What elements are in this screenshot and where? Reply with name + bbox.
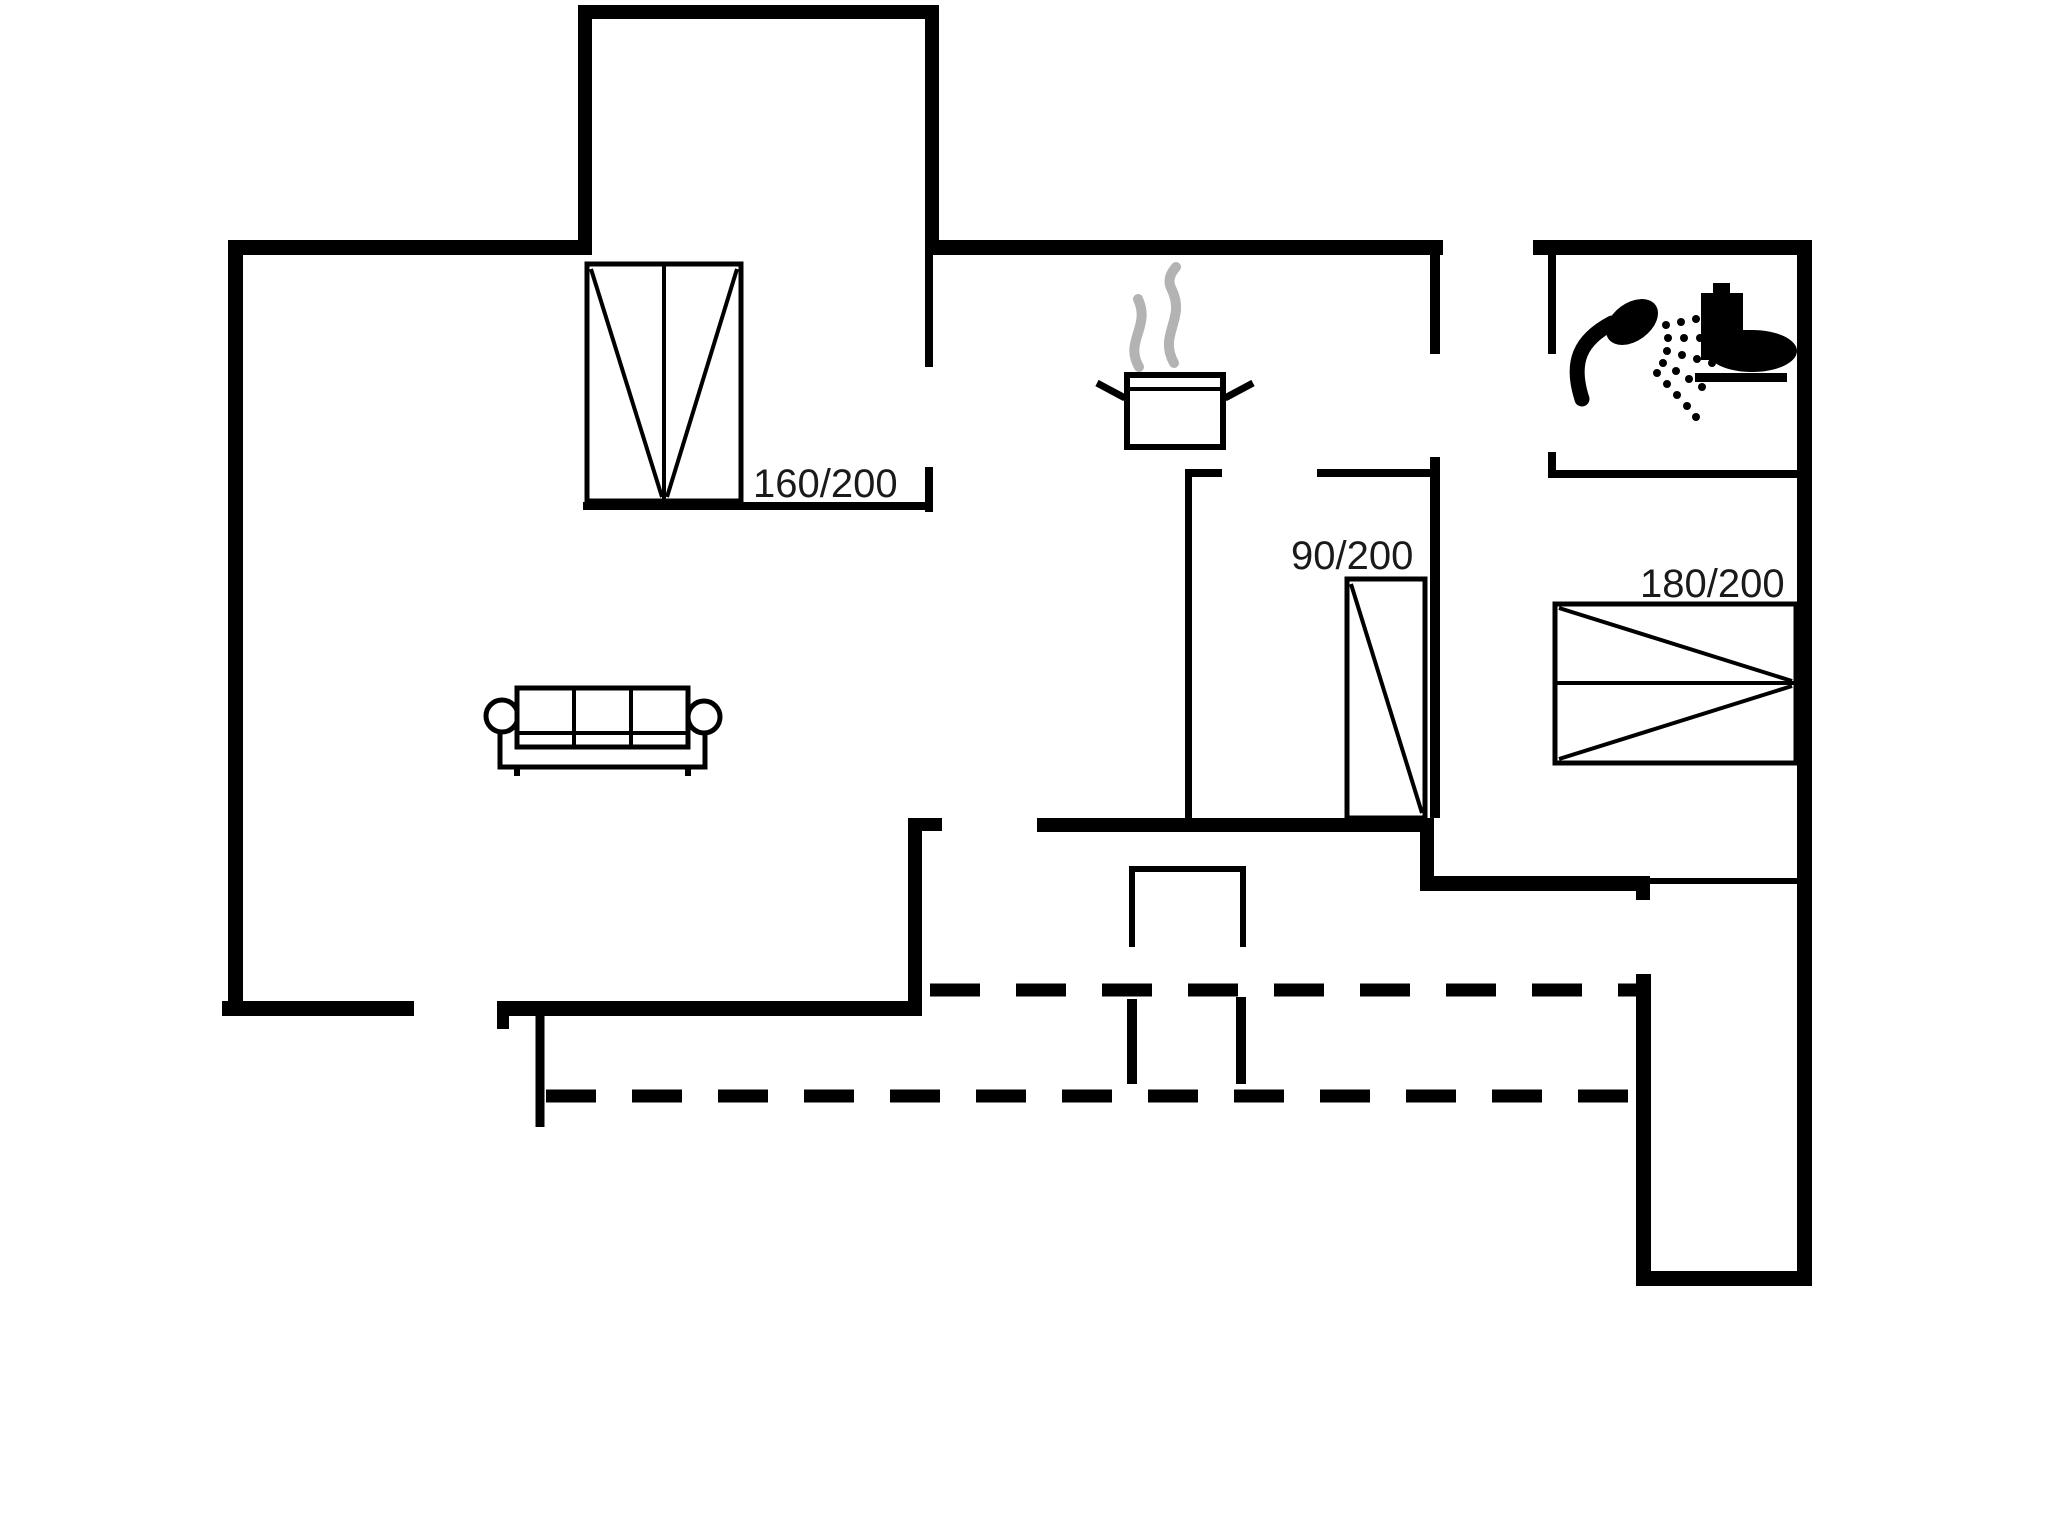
- pot-handle-left: [1097, 383, 1125, 398]
- wall-right: [1797, 240, 1812, 1286]
- wall-bedroom2-top: [1317, 469, 1430, 477]
- wall-bottom-center: [497, 1001, 922, 1016]
- wall-bedroom1-right-upper: [925, 255, 933, 367]
- toilet-base: [1695, 373, 1787, 382]
- wall-bottom-left: [222, 1001, 414, 1016]
- wall-annex-top-cap: [1636, 888, 1650, 900]
- shower-icon: [1577, 290, 1720, 421]
- bed-160-icon: [587, 264, 741, 501]
- alcove-wall-left: [578, 5, 592, 255]
- wall-top-left: [228, 240, 590, 255]
- bed-label-90: 90/200: [1291, 534, 1413, 578]
- wall-livingroom-right-stub: [908, 818, 942, 831]
- sofa-armrest-left: [486, 700, 518, 732]
- floor-plan-page: 160/200 90/200 180/200: [0, 0, 2048, 1536]
- steam-wisp-right: [1169, 267, 1176, 363]
- toilet-bowl: [1707, 330, 1797, 372]
- wall-left: [228, 240, 243, 1016]
- bed-label-160: 160/200: [753, 462, 898, 506]
- wall-top-bathroom: [1533, 240, 1812, 255]
- bed-90-icon: [1347, 579, 1425, 818]
- sofa-leg-right: [685, 767, 691, 776]
- wall-top-middle: [925, 240, 1443, 255]
- wall-kitchen-opening: [1430, 255, 1440, 354]
- alcove-wall-right: [925, 5, 939, 255]
- bed-label-180: 180/200: [1640, 562, 1785, 606]
- wall-livingroom-right: [908, 818, 922, 1016]
- sofa-leg-left: [514, 767, 520, 776]
- wall-bathroom-bottom: [1548, 470, 1798, 478]
- annex-ledge-line: [1650, 878, 1798, 884]
- step-outline: [1132, 869, 1243, 947]
- steam-wisp-left: [1134, 299, 1141, 367]
- bed-180-icon: [1555, 604, 1796, 763]
- wall-terrace-right: [1636, 974, 1651, 1286]
- sofa-armrest-right: [688, 701, 720, 733]
- sofa-backrest: [517, 688, 688, 747]
- wall-bedroom2-right: [1430, 457, 1440, 818]
- alcove-wall-top: [578, 5, 939, 19]
- floor-plan: 160/200 90/200 180/200: [0, 0, 2048, 1536]
- sofa-icon: [486, 688, 720, 776]
- stove-pot-icon: [1097, 267, 1253, 447]
- wall-bathroom-left-upper: [1548, 255, 1556, 354]
- pot-handle-right: [1225, 383, 1253, 398]
- wall-bottom-door-cap: [497, 1016, 509, 1029]
- toilet-flush-button: [1713, 283, 1730, 293]
- wall-annex-top: [1420, 876, 1650, 891]
- terrace-outline: [540, 869, 1648, 1127]
- pot-body: [1127, 375, 1223, 447]
- wall-hall-divider: [1185, 469, 1192, 820]
- toilet-icon: [1695, 283, 1797, 382]
- wall-bottom-right: [1636, 1271, 1812, 1286]
- bed-size-labels: 160/200 90/200 180/200: [753, 462, 1785, 606]
